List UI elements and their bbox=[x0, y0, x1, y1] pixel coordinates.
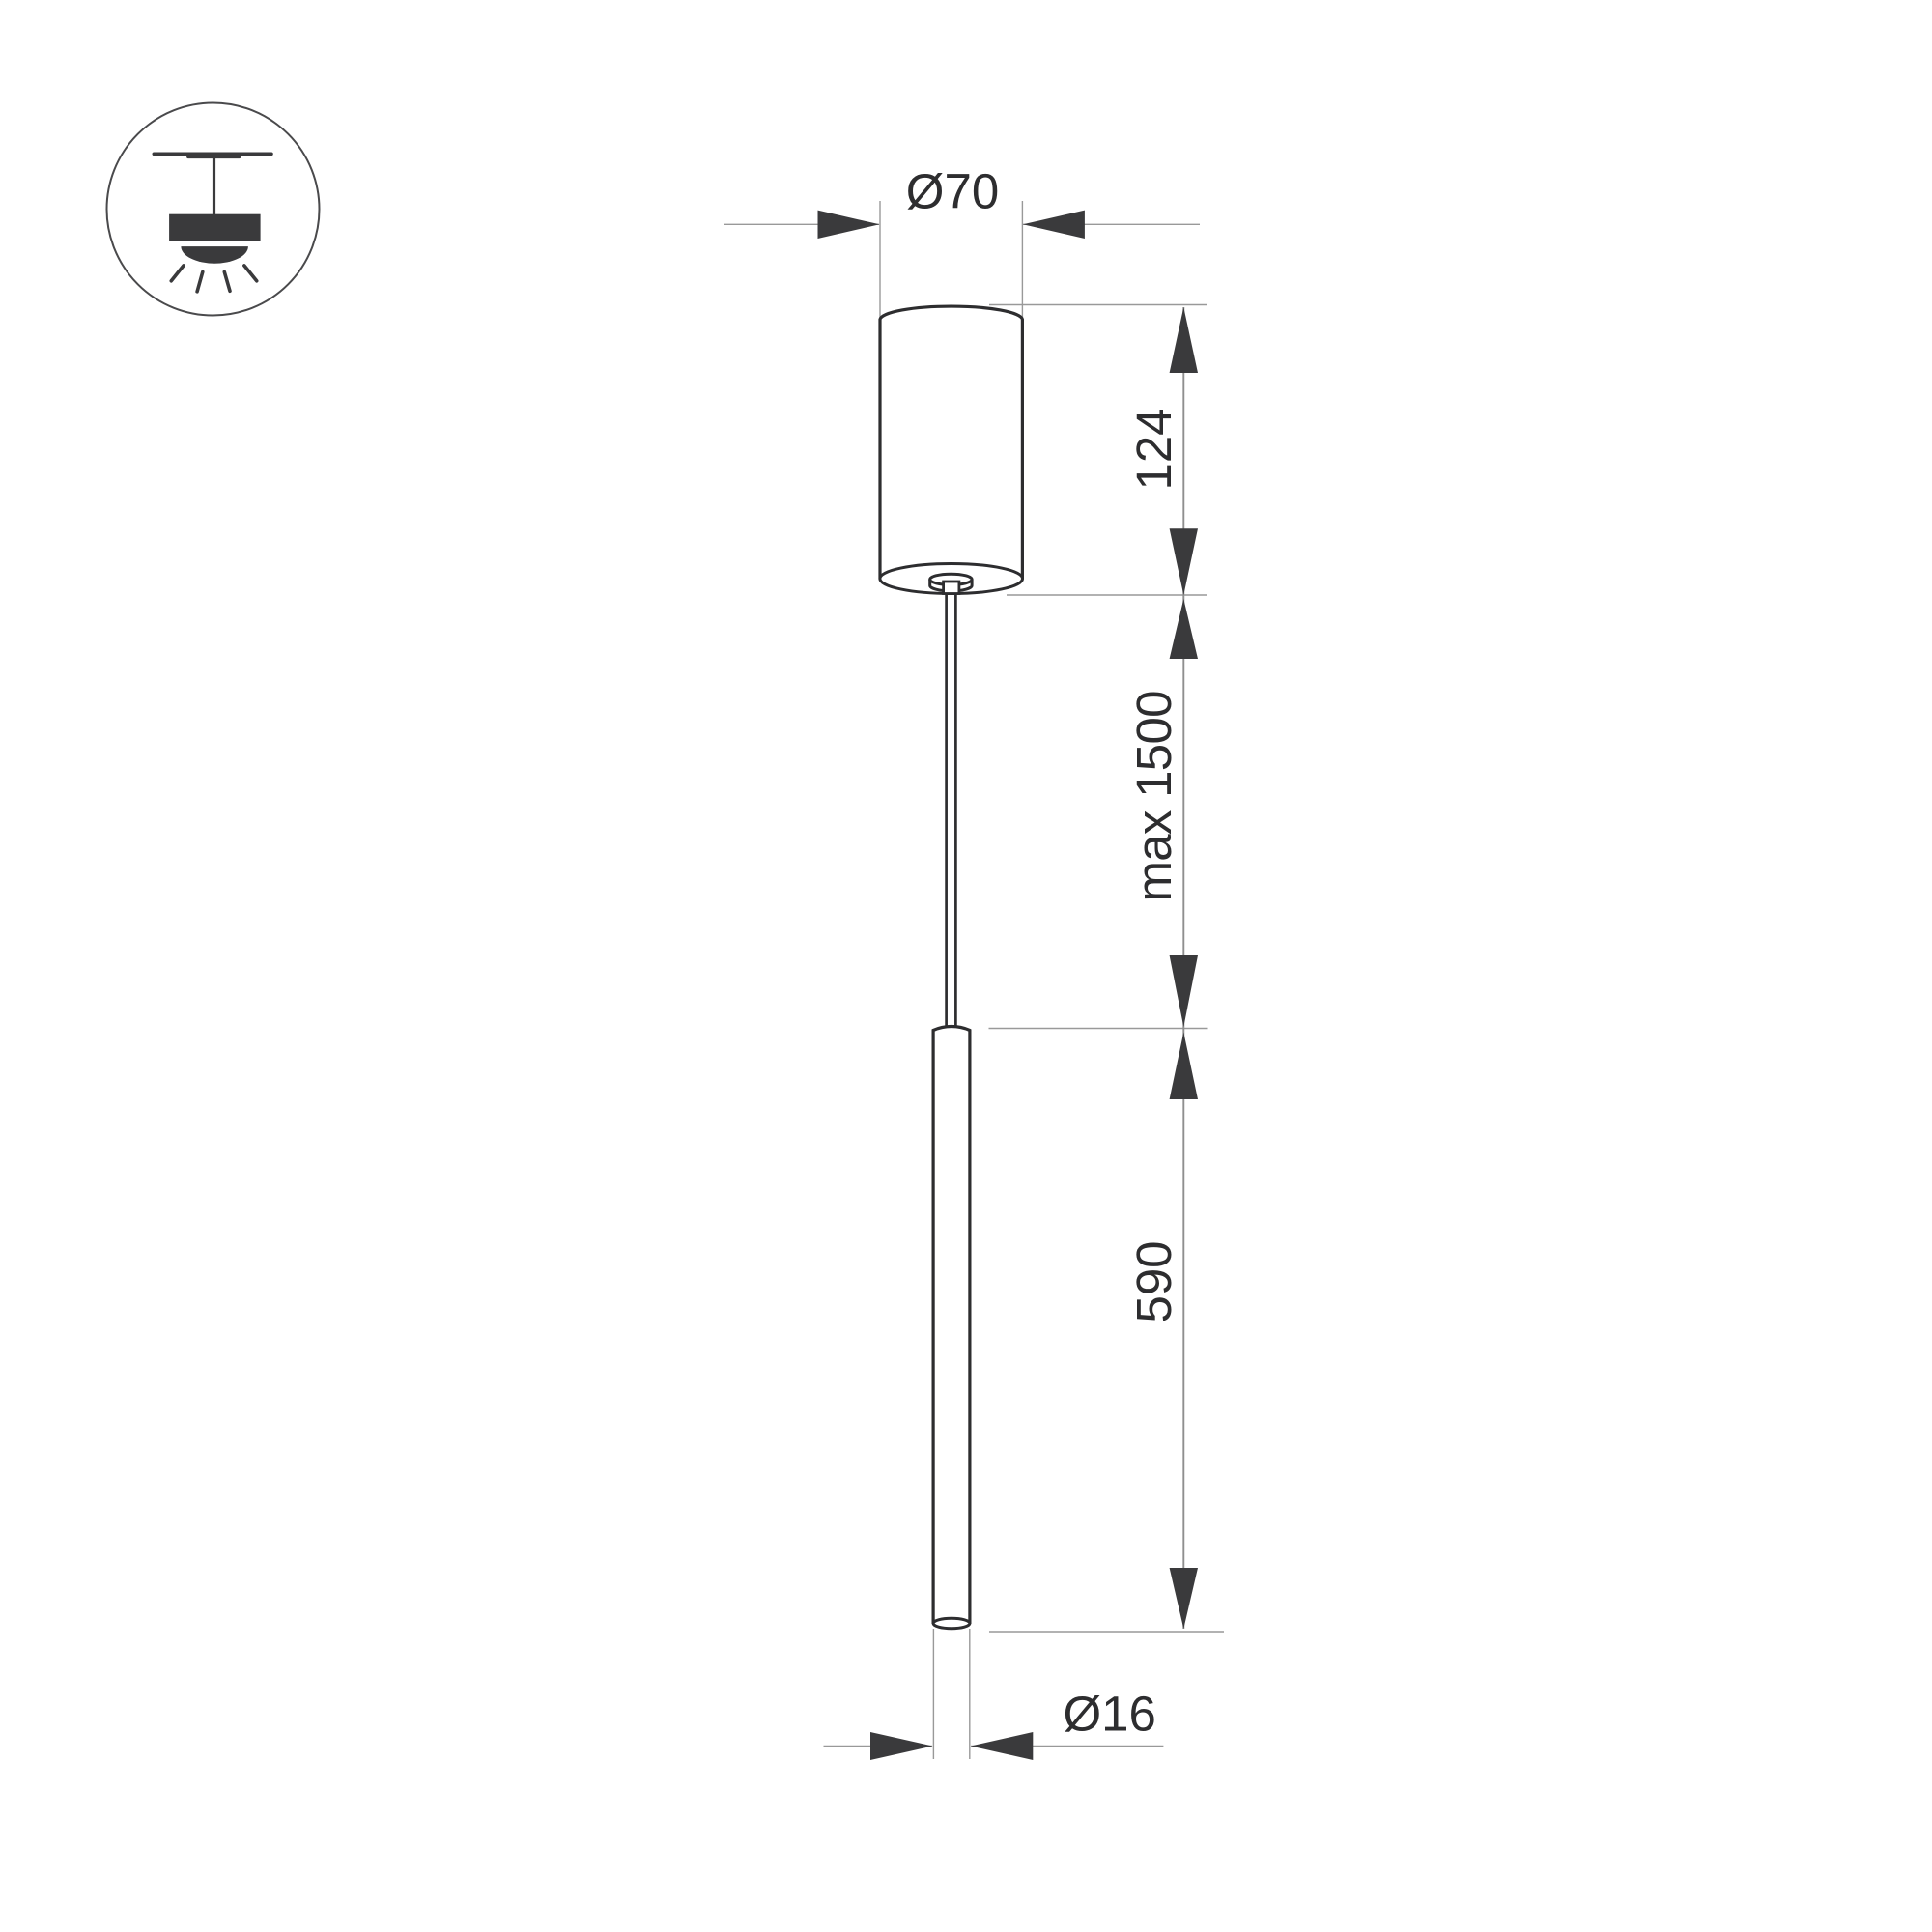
svg-text:Ø16: Ø16 bbox=[1063, 1686, 1155, 1741]
svg-text:max 1500: max 1500 bbox=[1126, 691, 1181, 902]
svg-text:590: 590 bbox=[1126, 1240, 1181, 1322]
svg-text:Ø70: Ø70 bbox=[906, 164, 999, 219]
svg-text:124: 124 bbox=[1126, 408, 1181, 490]
